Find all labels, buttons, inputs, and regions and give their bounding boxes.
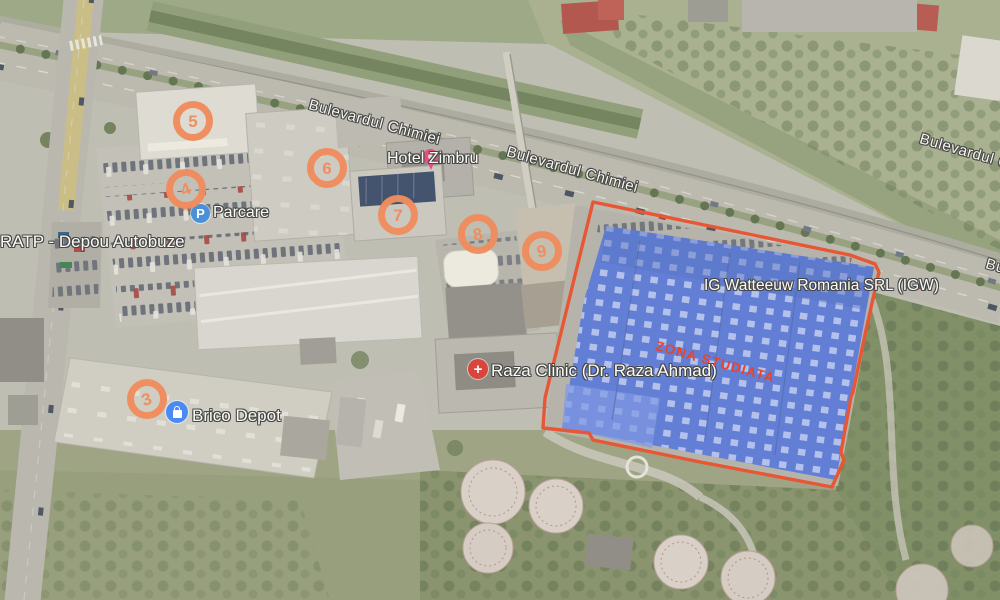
marker-8[interactable]: 8 <box>458 214 498 254</box>
parking-icon-glyph: P <box>196 206 205 221</box>
marker-3[interactable]: 3 <box>127 379 167 419</box>
marker-7[interactable]: 7 <box>378 195 418 235</box>
marker-6[interactable]: 6 <box>307 148 347 188</box>
marker-9-number: 9 <box>536 242 548 260</box>
marker-4[interactable]: 4 <box>166 169 206 209</box>
poi-label-raza-clinic[interactable]: Raza Clinic (Dr. Raza Ahmad) <box>491 361 717 381</box>
marker-5[interactable]: 5 <box>173 101 213 141</box>
medical-cross-icon: + <box>468 359 488 379</box>
poi-label-parcare[interactable]: Parcare <box>213 204 269 222</box>
satellite-imagery <box>0 0 1000 600</box>
marker-9[interactable]: 9 <box>522 231 562 271</box>
satellite-map-canvas[interactable]: Bulevardul Chimiei Bulevardul Chimiei Bu… <box>0 0 1000 600</box>
marker-7-number: 7 <box>393 207 402 224</box>
medical-icon-glyph: + <box>474 361 483 378</box>
haze-overlay <box>0 0 1000 600</box>
marker-3-number: 3 <box>140 389 154 408</box>
marker-8-number: 8 <box>472 225 485 244</box>
marker-4-number: 4 <box>178 179 193 198</box>
marker-6-number: 6 <box>322 160 331 177</box>
poi-label-brico-depot[interactable]: Brico Depot <box>192 406 281 426</box>
poi-label-ig-watteeuw[interactable]: IG Watteeuw Romania SRL (IGW) <box>704 277 939 295</box>
marker-5-number: 5 <box>188 113 197 130</box>
store-icon <box>166 401 188 423</box>
poi-label-hotel-zimbru[interactable]: Hotel Zimbru <box>387 150 479 168</box>
poi-label-ratp-depou-autobuze[interactable]: RATP - Depou Autobuze <box>0 232 185 252</box>
